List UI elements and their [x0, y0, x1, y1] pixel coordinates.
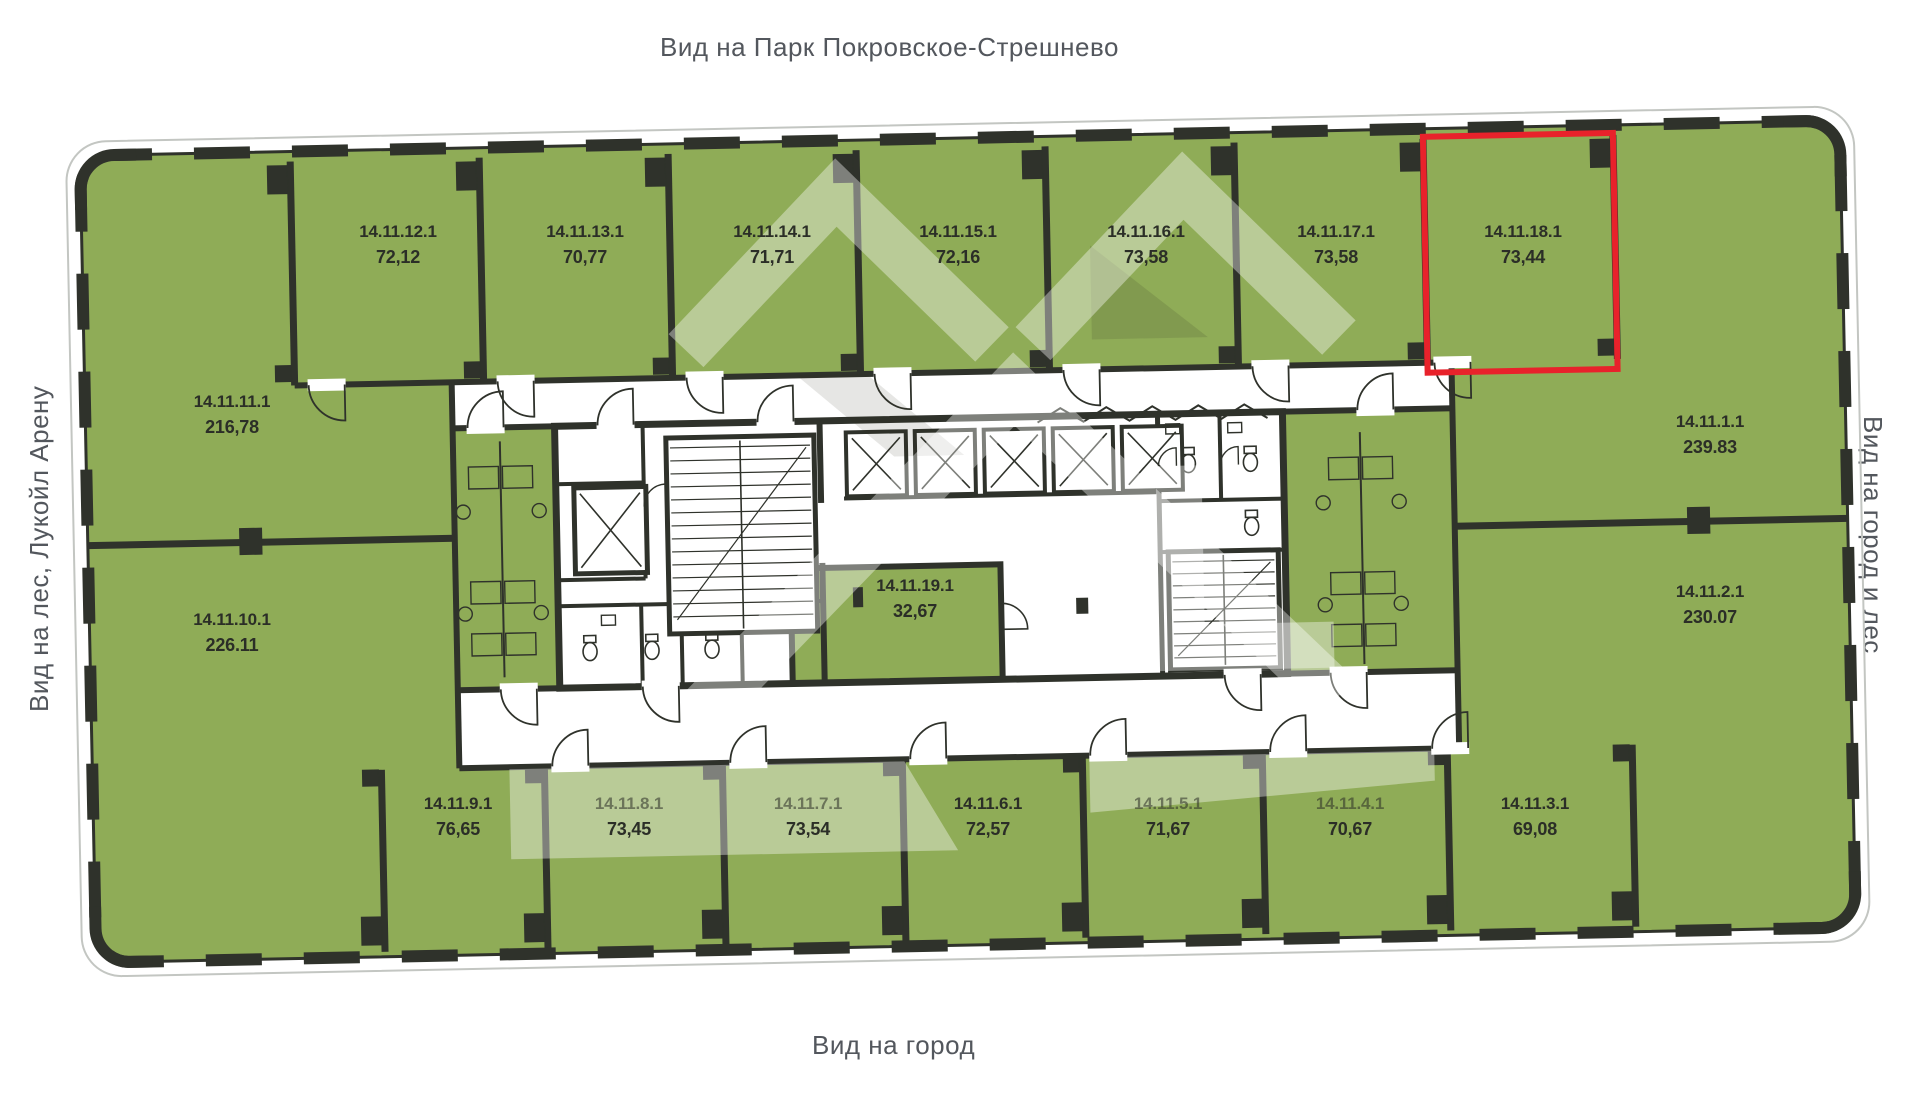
- unit-label-14-11-17-1[interactable]: 14.11.17.1 73,58: [1297, 219, 1374, 270]
- unit-label-14-11-18-1[interactable]: 14.11.18.1 73,44: [1484, 219, 1561, 270]
- unit-label-14-11-14-1[interactable]: 14.11.14.1 71,71: [733, 219, 810, 270]
- unit-label-14-11-6-1[interactable]: 14.11.6.1 72,57: [954, 791, 1022, 842]
- unit-label-14-11-2-1[interactable]: 14.11.2.1 230.07: [1676, 579, 1744, 630]
- unit-label-14-11-16-1[interactable]: 14.11.16.1 73,58: [1107, 219, 1184, 270]
- unit-label-14-11-9-1[interactable]: 14.11.9.1 76,65: [424, 791, 492, 842]
- floor-plan-svg: [0, 0, 1920, 1101]
- floor-plan-page: Вид на Парк Покровское-Стрешнево Вид на …: [0, 0, 1920, 1101]
- unit-label-14-11-11-1[interactable]: 14.11.11.1 216,78: [194, 389, 270, 440]
- unit-label-14-11-3-1[interactable]: 14.11.3.1 69,08: [1501, 791, 1569, 842]
- unit-label-14-11-10-1[interactable]: 14.11.10.1 226.11: [193, 607, 270, 658]
- unit-label-14-11-7-1[interactable]: 14.11.7.1 73,54: [774, 791, 842, 842]
- unit-label-14-11-13-1[interactable]: 14.11.13.1 70,77: [546, 219, 623, 270]
- unit-label-14-11-4-1[interactable]: 14.11.4.1 70,67: [1316, 791, 1384, 842]
- unit-label-14-11-5-1[interactable]: 14.11.5.1 71,67: [1134, 791, 1202, 842]
- unit-label-14-11-15-1[interactable]: 14.11.15.1 72,16: [919, 219, 996, 270]
- unit-label-14-11-1-1[interactable]: 14.11.1.1 239.83: [1676, 409, 1744, 460]
- unit-label-14-11-19-1[interactable]: 14.11.19.1 32,67: [876, 573, 953, 624]
- unit-label-14-11-8-1[interactable]: 14.11.8.1 73,45: [595, 791, 663, 842]
- unit-label-14-11-12-1[interactable]: 14.11.12.1 72,12: [359, 219, 436, 270]
